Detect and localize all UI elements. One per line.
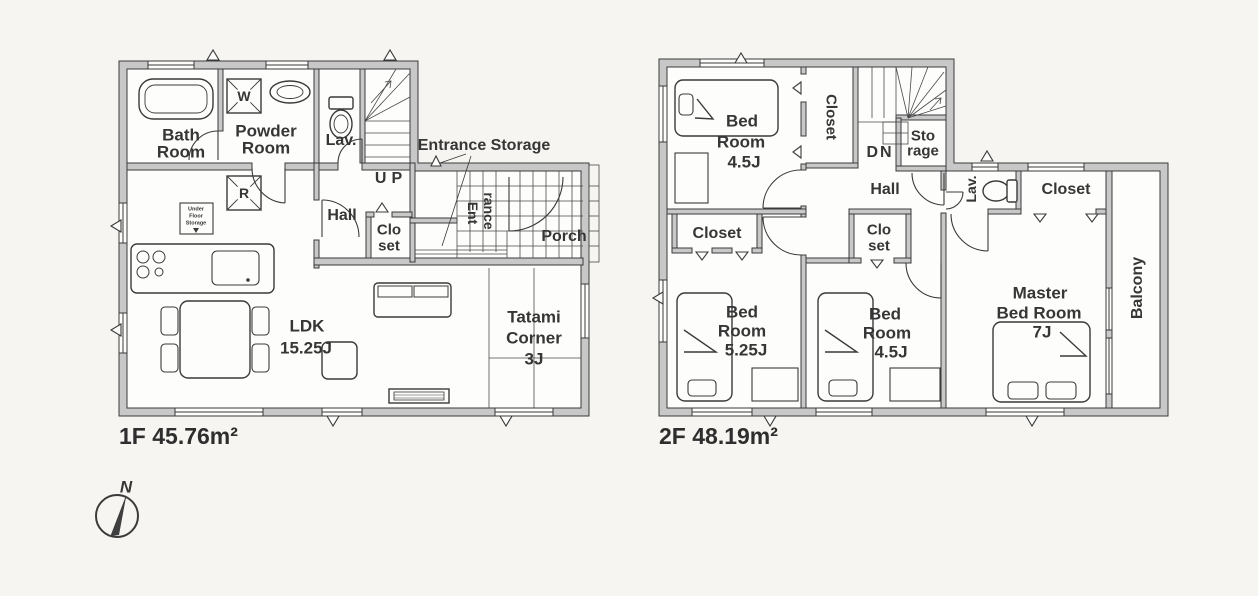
tv-board: [389, 389, 449, 403]
bedroom3-label-2: Room: [863, 325, 911, 342]
fridge-label: R: [239, 186, 249, 200]
bedroom2-label-3: 5.25J: [725, 342, 768, 359]
underfloor-label-2: Floor: [189, 214, 203, 220]
stairs-down-label: DN: [866, 145, 893, 161]
washer-label: W: [237, 89, 250, 103]
closet-master-label: Closet: [1042, 182, 1091, 198]
ldk-label: LDK: [290, 318, 325, 335]
closet-left-label: Closet: [693, 226, 742, 242]
bath-room-label-1: Bath: [162, 127, 200, 144]
tatami-label-3: 3J: [525, 351, 544, 368]
bedroom3-label-1: Bed: [869, 306, 901, 323]
tatami-label-2: Corner: [506, 330, 562, 347]
hall-label-1f: Hall: [327, 208, 356, 224]
kitchen-counter: [131, 244, 274, 293]
bedroom3-label-3: 4.5J: [874, 344, 907, 361]
master-label-1: Master: [1013, 285, 1068, 302]
bedroom2-label-1: Bed: [726, 304, 758, 321]
powder-room-label-1: Powder: [235, 123, 296, 140]
storage-label-1: Sto: [911, 129, 935, 144]
toilet-2f: [983, 180, 1017, 202]
lav-label-2f: Lav.: [964, 176, 978, 203]
bedroom1-label-1: Bed: [726, 113, 758, 130]
compass-icon: [96, 495, 138, 537]
hall-label-2f: Hall: [870, 182, 899, 198]
powder-room-label-2: Room: [242, 140, 290, 157]
sofa: [374, 283, 451, 317]
closet-mid-label-2: set: [868, 239, 890, 254]
porch-label: Porch: [541, 229, 586, 245]
storage-label-2: rage: [907, 144, 939, 159]
compass-north-label: N: [120, 479, 132, 496]
closet-label-1f-1: Clo: [377, 223, 401, 238]
closet-top-label: Closet: [824, 94, 839, 140]
balcony-label: Balcony: [1130, 257, 1146, 319]
master-label-3: 7J: [1033, 324, 1052, 341]
underfloor-label-3: Storage: [186, 221, 206, 227]
ldk-size-label: 15.25J: [280, 340, 332, 357]
lav-label-1f: Lav.: [326, 133, 357, 149]
closet-mid-label-1: Clo: [867, 223, 891, 238]
underfloor-label-1: Under: [188, 207, 204, 213]
tatami-label-1: Tatami: [507, 309, 561, 326]
bedroom1-label-3: 4.5J: [727, 154, 760, 171]
bedroom2-label-2: Room: [718, 323, 766, 340]
stairs-up-label: UP: [375, 171, 407, 187]
entrance-storage-label: Entrance Storage: [418, 138, 550, 154]
floorplan-canvas: Bath Room Powder Room Lav. UP Hall Clo s…: [0, 0, 1258, 596]
floor1-area-label: 1F 45.76m²: [119, 423, 238, 450]
entrance-label-2: rance: [482, 192, 496, 229]
closet-label-1f-2: set: [378, 239, 400, 254]
bedroom1-label-2: Room: [717, 134, 765, 151]
floorplan-graphics: [0, 0, 1258, 596]
bath-room-label-2: Room: [157, 144, 205, 161]
floor2-area-label: 2F 48.19m²: [659, 423, 778, 450]
sink: [270, 81, 310, 103]
entrance-label-1: Ent: [466, 202, 480, 225]
master-label-2: Bed Room: [997, 305, 1082, 322]
